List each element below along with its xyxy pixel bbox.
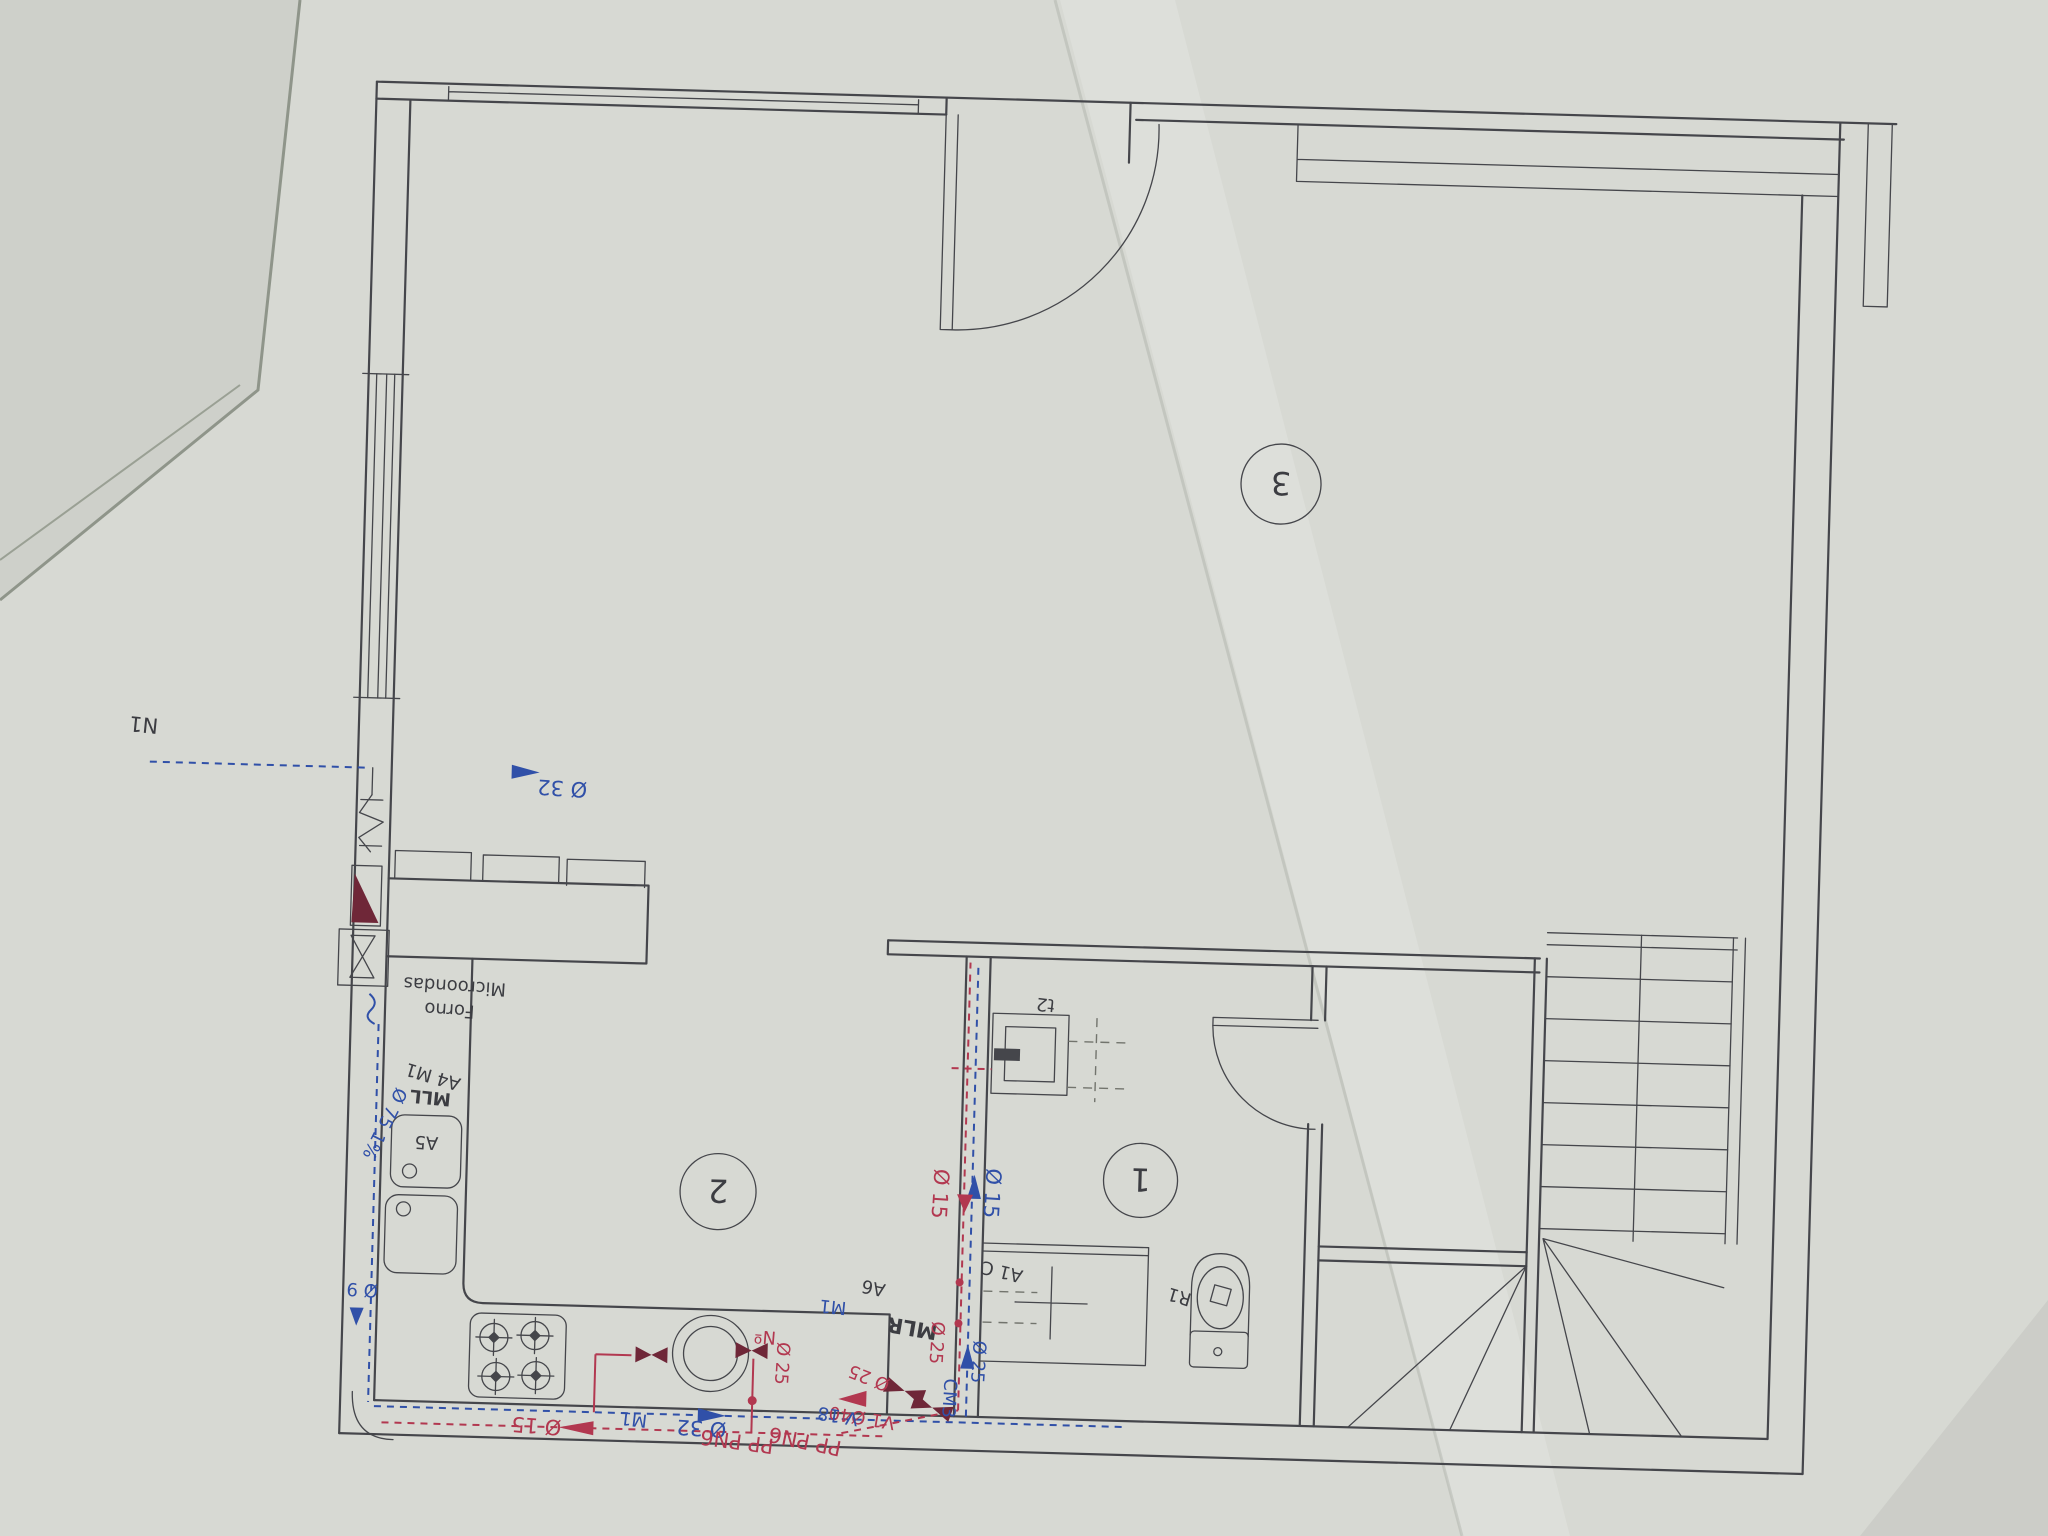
riser-stub [372,768,373,795]
shower-ticks [983,1291,1038,1323]
hot-junction-dot [748,1396,757,1405]
stove-outline [468,1313,566,1400]
wall-right-outer [1803,123,1841,1474]
fold-highlight [1060,0,1570,1536]
label-m1-kitchen: M1 [619,1407,648,1431]
label-d25-cold: Ø 25 [966,1340,990,1384]
label-m1-wall: M1 [818,1295,847,1319]
label-t2: t2 [1035,993,1056,1016]
corner-vignette [1860,1300,2048,1536]
bathroom-door-arc [1210,1025,1318,1129]
wall-top-inner-right [1136,120,1844,140]
photo-of-floor-plan: Forno Microondas [0,0,2048,1536]
toilet [1189,1253,1250,1369]
label-forno: Forno [424,998,475,1022]
room-3-number: 3 [1270,464,1291,503]
cylinder-inner [683,1326,738,1381]
label-cm3: CM3 [937,1378,960,1419]
door-leaf [940,115,958,330]
wall-top-inner-left [376,99,946,115]
label-a6: A6 [860,1275,888,1300]
wall-left-inner [374,100,410,1400]
toilet-bowl-outline [1190,1253,1250,1337]
toilet-bowl [1196,1266,1244,1329]
hot-stub-stove [594,1354,632,1413]
sink-drain [396,1202,410,1216]
wall-right-inner [1768,196,1803,1440]
label-d75: Ø 75 1% [358,1084,411,1162]
counter-top-block [386,878,648,963]
label-mll: MLL [409,1085,452,1110]
stairs-left-wall [1522,958,1547,1432]
paper-folds [0,0,2048,1536]
label-d9: Ø 9 [346,1278,379,1301]
valve-bowtie-left [635,1346,667,1363]
label-d15-cold-riser: Ø 15 [979,1168,1006,1219]
room-2-number: 2 [707,1171,728,1210]
fold-shadow-line [1055,0,1462,1536]
wall-bottom-inner [374,1400,1767,1439]
heater-hot-feed [952,1068,992,1069]
paper-corner-shade [0,0,300,600]
bathroom-door [1210,1017,1318,1129]
hot-flow-arrow-left [558,1420,593,1435]
label-pp-pn6-1: PP PN6 [699,1424,775,1458]
cold-main-supply [150,762,370,768]
stairs-rail [1633,935,1642,1241]
label-d25-hot: Ø 25 [845,1360,893,1395]
shower-drain-cross [1014,1266,1088,1340]
window-band-top-right [1296,124,1839,196]
blue-connector-scribble [367,994,375,1024]
stove-burners [474,1316,555,1396]
label-r1: R1 [1165,1283,1194,1310]
oven-label-group: Forno Microondas [401,972,506,1023]
stairs-top-edge [1547,933,1737,950]
plan: Forno Microondas [108,75,1896,1489]
toilet-flush-symbol [1210,1285,1231,1306]
label-d25-heater: Ø 25 [770,1341,794,1385]
wall-left-outer [339,82,377,1433]
sink-2 [384,1194,458,1274]
label-a5: A5 [414,1131,439,1153]
flow-arrow-supply [512,765,540,780]
heater-handle [994,1048,1020,1061]
cold-run-bottom [374,1406,1122,1427]
label-microondas: Microondas [403,972,507,999]
window-panes [368,374,395,698]
sink-drain [402,1164,416,1178]
meter-fill-triangle [351,873,379,923]
stairs-treads [1539,977,1732,1234]
flow-arrow-down-left [349,1307,363,1325]
bathroom-top-wall [888,940,1540,972]
chimney-top-right [1863,123,1892,307]
room-1-number: 1 [1130,1160,1151,1199]
label-d15-kitchen: Ø 15 [511,1412,563,1440]
label-a1c: A1 C [979,1256,1025,1286]
toilet-tank [1189,1331,1248,1369]
water-heater-box [951,1012,1131,1103]
cold-riser-left-wall [368,1024,379,1402]
floor-plan-drawing: Forno Microondas [0,0,2048,1536]
counter-outer-corner [351,1391,394,1439]
label-n1: N1 [128,711,159,738]
bathroom-door-leaf [1213,1017,1318,1028]
hot-drop-from-cylinder [751,1359,753,1433]
label-d32-supply: Ø 32 [537,775,588,802]
toilet-tank-screw [1214,1348,1222,1356]
bathroom-right-wall-lower [1300,1124,1322,1426]
label-d15-hot-riser: Ø 15 [927,1168,954,1219]
stove [468,1313,566,1400]
heater-centerlines [1067,1017,1131,1103]
stairs-right-stringer [1725,938,1746,1244]
water-cylinder [634,1313,768,1393]
label-pp-pn6-2: PP PN6 [766,1422,843,1460]
break-symbol [358,794,384,852]
label-d25-riser: Ø 25 [925,1321,949,1365]
sink-basin [384,1194,458,1274]
